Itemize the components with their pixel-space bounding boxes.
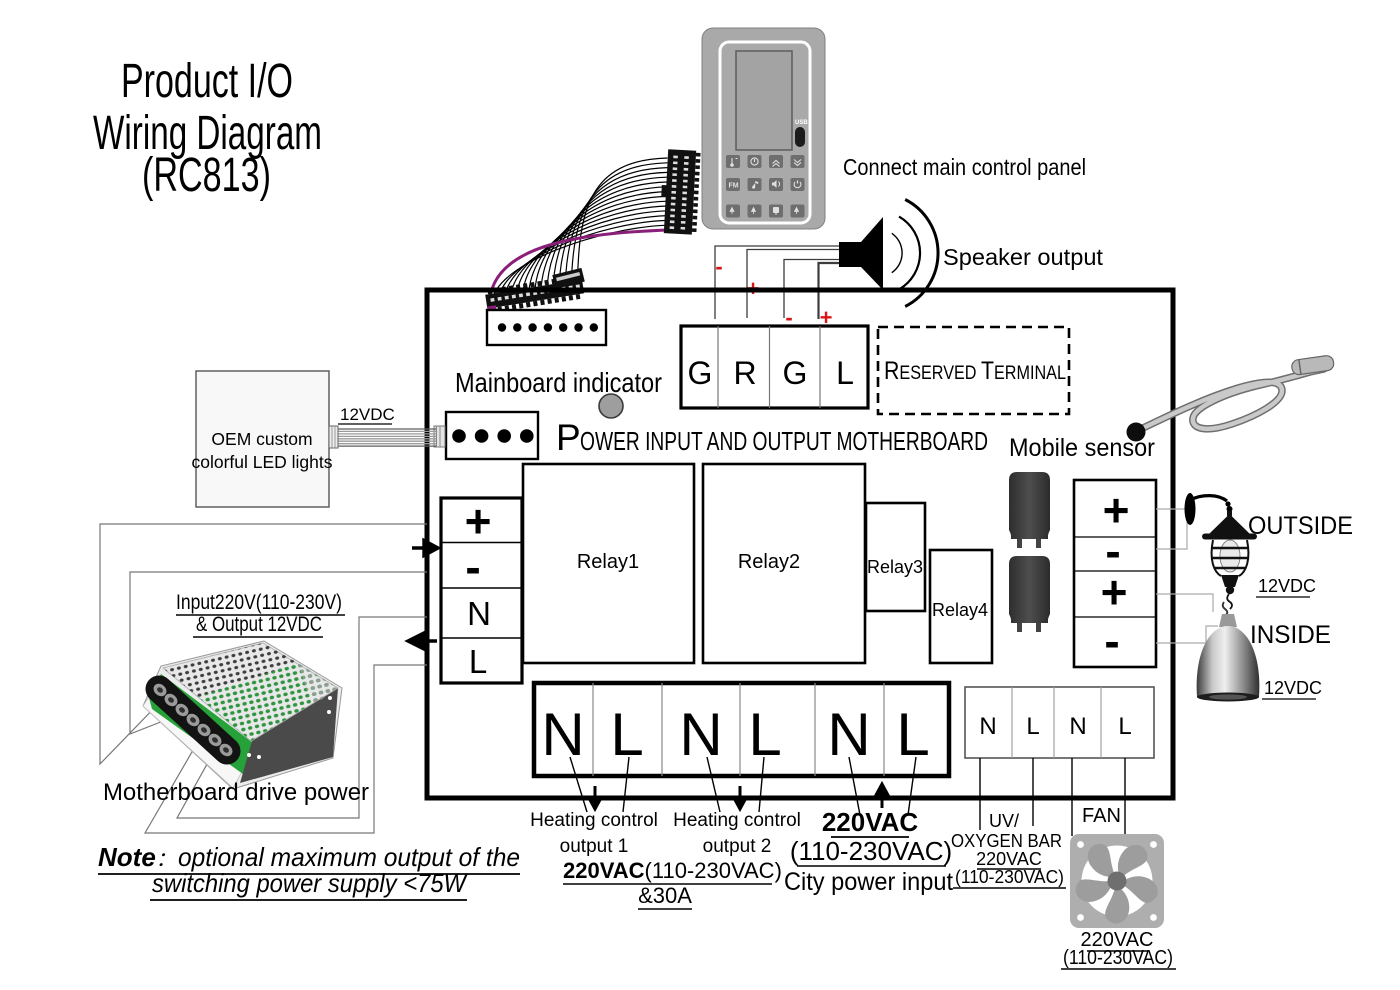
svg-text:+: + [465,495,492,547]
svg-text:Connect main control panel: Connect main control panel [843,154,1086,180]
svg-text:-: - [1104,615,1119,667]
svg-text:Motherboard drive power: Motherboard drive power [103,779,369,806]
svg-text:USB: USB [795,120,808,126]
svg-text:G: G [783,355,808,391]
svg-text:Input220V(110-230V): Input220V(110-230V) [176,591,342,614]
svg-text:L: L [748,701,781,768]
svg-text:FAN: FAN [1082,805,1121,827]
svg-text:output 2: output 2 [703,836,772,857]
svg-text:P: P [556,417,581,458]
svg-text:-: - [465,541,480,593]
svg-text:Speaker output: Speaker output [943,244,1104,270]
svg-text:colorful LED lights: colorful LED lights [191,452,332,472]
svg-text:L: L [1118,713,1131,740]
svg-text:Heating control: Heating control [530,810,658,831]
svg-text:Relay2: Relay2 [738,551,800,573]
svg-text:N: N [467,595,491,632]
svg-text:OEM custom: OEM custom [211,429,312,449]
svg-text:220VAC(110-230VAC): 220VAC(110-230VAC) [563,858,782,883]
svg-text:+: + [1101,566,1128,618]
svg-text:G: G [688,355,713,391]
svg-text:Heating control: Heating control [673,810,801,831]
svg-text:Relay1: Relay1 [577,551,639,573]
svg-text:(110-230VAC): (110-230VAC) [790,836,952,866]
svg-text:& Output 12VDC: & Output 12VDC [196,613,322,636]
svg-text:L: L [896,701,929,768]
svg-text:output 1: output 1 [560,836,629,857]
svg-text:220VAC: 220VAC [976,849,1042,869]
svg-text:Mainboard indicator: Mainboard indicator [455,367,662,398]
svg-text:L: L [610,701,643,768]
svg-text:L: L [836,355,854,391]
svg-text:OUTSIDE: OUTSIDE [1248,512,1353,540]
svg-text:12VDC: 12VDC [1264,678,1322,698]
svg-text:12VDC: 12VDC [1258,576,1316,596]
svg-text:-: - [715,254,722,279]
svg-text:L: L [1026,713,1039,740]
svg-text:(110-230VAC): (110-230VAC) [955,867,1064,887]
svg-text:City power input: City power input [784,868,953,896]
svg-text:12VDC: 12VDC [340,405,395,424]
svg-text:FM: FM [729,183,739,190]
svg-text:N: N [541,701,584,768]
svg-text:(RC813): (RC813) [142,149,271,202]
svg-text:L: L [469,643,487,680]
svg-text:&30A: &30A [638,883,692,908]
svg-text:220VAC: 220VAC [822,807,919,837]
svg-text:R: R [733,355,756,391]
svg-text:INSIDE: INSIDE [1250,621,1331,649]
svg-text:Product I/O: Product I/O [121,55,293,108]
svg-text:switching power supply <75W: switching power supply <75W [152,868,468,898]
svg-text:N: N [1069,713,1086,740]
svg-text:OWER INPUT AND OUTPUT MOTHERBO: OWER INPUT AND OUTPUT MOTHERBOARD [580,426,988,456]
svg-text:N: N [979,713,996,740]
svg-text:(110-230VAC): (110-230VAC) [1063,947,1173,969]
svg-text:UV/: UV/ [989,811,1019,831]
svg-text:N: N [679,701,722,768]
svg-text:Relay3: Relay3 [867,557,923,577]
svg-text:Relay4: Relay4 [932,600,988,620]
svg-text:OXYGEN BAR: OXYGEN BAR [951,831,1062,851]
